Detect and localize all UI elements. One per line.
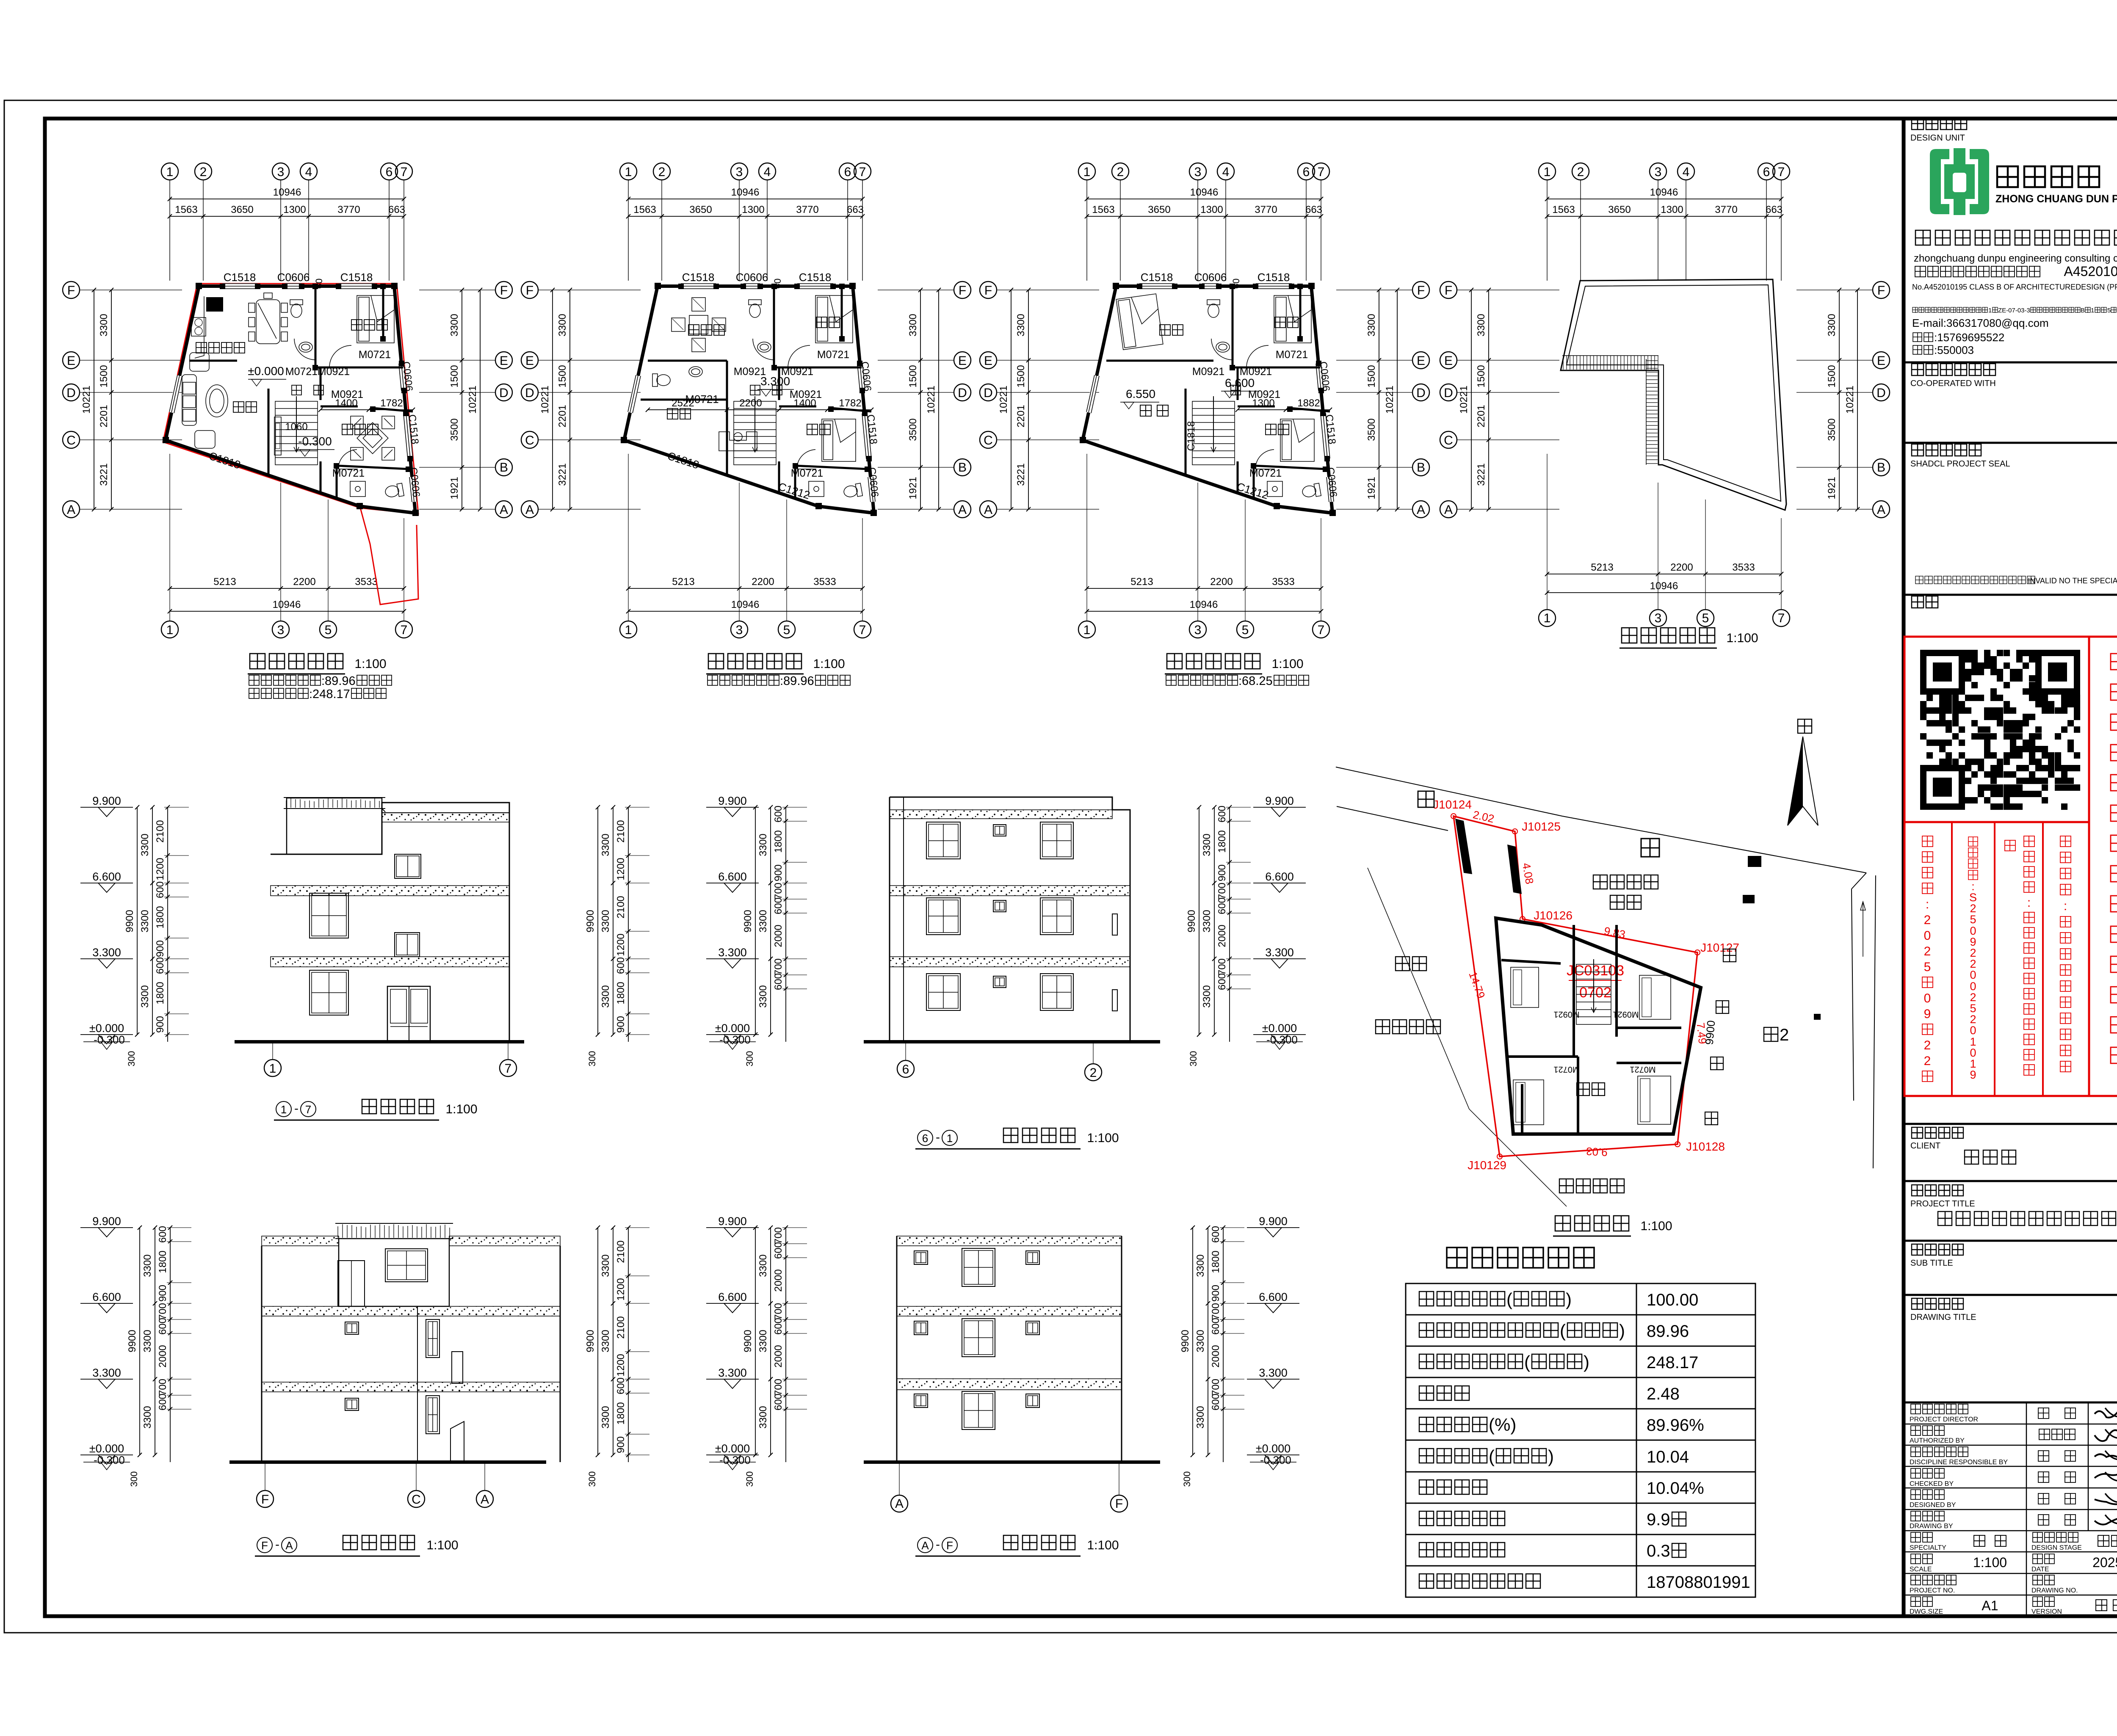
svg-text:0.3: 0.3	[1647, 1542, 1670, 1560]
svg-text:C0606: C0606	[1194, 271, 1227, 284]
svg-text:E: E	[984, 354, 992, 368]
svg-text:A: A	[285, 1539, 293, 1552]
svg-text:DESIGN UNIT: DESIGN UNIT	[1910, 133, 1965, 143]
svg-text:9900: 9900	[585, 1330, 596, 1352]
svg-text:2100: 2100	[615, 820, 627, 842]
svg-text:3300: 3300	[1201, 985, 1213, 1007]
svg-text:2000: 2000	[1210, 1345, 1222, 1367]
svg-text:A: A	[921, 1539, 929, 1552]
svg-text:5: 5	[1924, 960, 1931, 974]
svg-text:1: 1	[947, 1132, 953, 1145]
svg-text:300: 300	[744, 1471, 755, 1487]
svg-text:CHECKED BY: CHECKED BY	[1910, 1480, 1954, 1488]
svg-text:D: D	[984, 386, 993, 400]
svg-text:7: 7	[305, 1103, 311, 1116]
svg-text:1800: 1800	[773, 830, 784, 853]
svg-text:(: (	[1506, 1289, 1512, 1309]
svg-text:M0721: M0721	[685, 393, 719, 406]
svg-text:3770: 3770	[337, 204, 360, 215]
svg-text:1:100: 1:100	[445, 1102, 477, 1116]
svg-text:9.900: 9.900	[718, 795, 747, 807]
svg-text:A: A	[1417, 503, 1425, 517]
svg-text:J10128: J10128	[1686, 1140, 1725, 1153]
svg-text:9: 9	[1924, 1007, 1931, 1021]
svg-text:2: 2	[1924, 1054, 1931, 1068]
svg-text:DRAWING BY: DRAWING BY	[1910, 1523, 1953, 1530]
svg-text:±0.000: ±0.000	[1262, 1022, 1297, 1035]
svg-text:3300: 3300	[139, 910, 151, 932]
svg-text:600: 600	[155, 881, 166, 898]
svg-text:2000: 2000	[773, 1269, 784, 1292]
svg-text:3.300: 3.300	[92, 946, 121, 959]
svg-text:3650: 3650	[689, 204, 712, 215]
svg-text:C1818: C1818	[1186, 421, 1197, 451]
svg-text:4: 4	[1222, 165, 1230, 179]
svg-text:300: 300	[129, 1471, 139, 1487]
svg-text:2100: 2100	[615, 1240, 627, 1263]
svg-text:10221: 10221	[998, 386, 1009, 414]
svg-text:3300: 3300	[1201, 910, 1213, 932]
svg-text:600: 600	[773, 1242, 784, 1259]
svg-text:3300: 3300	[1195, 1330, 1206, 1352]
svg-text::89.96: :89.96	[321, 674, 356, 688]
svg-text:E: E	[958, 354, 967, 368]
svg-text:2: 2	[1577, 165, 1584, 179]
svg-text:9.900: 9.900	[718, 1215, 747, 1228]
svg-text:1882: 1882	[1297, 397, 1320, 409]
svg-text:6.600: 6.600	[718, 870, 747, 883]
svg-text:M0721: M0721	[1553, 1065, 1579, 1074]
svg-text:M0921: M0921	[331, 389, 363, 400]
svg-text:B: B	[958, 461, 967, 475]
svg-text:3221: 3221	[1476, 463, 1487, 486]
svg-text:9.03: 9.03	[1586, 1145, 1608, 1159]
svg-text:2: 2	[1924, 913, 1931, 927]
svg-text:6.600: 6.600	[1265, 870, 1294, 883]
svg-text:1563: 1563	[175, 204, 197, 215]
svg-text:-: -	[936, 1537, 940, 1551]
svg-text:C1518: C1518	[224, 271, 256, 284]
svg-text:1: 1	[1083, 623, 1091, 637]
svg-text:600: 600	[773, 1318, 784, 1335]
svg-text:1:100: 1:100	[1973, 1555, 2007, 1570]
svg-text:D: D	[1444, 386, 1453, 400]
svg-text:3500: 3500	[449, 418, 460, 441]
svg-text:900: 900	[615, 1016, 627, 1033]
svg-text:700: 700	[1216, 958, 1228, 975]
svg-text:9900: 9900	[127, 1330, 138, 1352]
svg-text:2: 2	[1924, 1038, 1931, 1052]
svg-text:F: F	[1417, 284, 1425, 298]
svg-text:M0721: M0721	[359, 349, 391, 361]
svg-text:700: 700	[773, 883, 784, 900]
svg-text:0: 0	[1924, 991, 1931, 1005]
svg-text:E: E	[1417, 354, 1425, 368]
svg-text:±0.000: ±0.000	[89, 1022, 124, 1035]
svg-text:M0921: M0921	[1613, 1010, 1639, 1019]
svg-text:3300: 3300	[1195, 1406, 1206, 1428]
svg-text:900: 900	[155, 1016, 166, 1033]
svg-text:600: 600	[615, 957, 627, 974]
svg-text:600: 600	[157, 1394, 169, 1410]
svg-text:300: 300	[1182, 1471, 1192, 1487]
svg-text:3300: 3300	[98, 314, 110, 336]
svg-text:DRAWING NO.: DRAWING NO.	[2031, 1587, 2078, 1594]
svg-text:10946: 10946	[1190, 187, 1219, 198]
svg-text:7: 7	[505, 1062, 512, 1076]
svg-text:3.300: 3.300	[1265, 946, 1294, 959]
svg-text:3650: 3650	[1148, 204, 1170, 215]
svg-text:-0.300: -0.300	[1260, 1454, 1291, 1466]
svg-text:M0921: M0921	[1553, 1010, 1579, 1019]
svg-text:D: D	[66, 386, 76, 400]
svg-text:7: 7	[1778, 165, 1785, 179]
svg-text:6: 6	[1303, 165, 1310, 179]
svg-text:10946: 10946	[731, 599, 760, 610]
svg-text:A452010195: A452010195	[2064, 264, 2117, 279]
svg-text:10946: 10946	[273, 187, 301, 198]
svg-text:700: 700	[773, 958, 784, 975]
svg-text:3770: 3770	[796, 204, 818, 215]
svg-text:-: -	[275, 1537, 279, 1551]
svg-text:SPECIALTY: SPECIALTY	[1910, 1544, 1946, 1551]
svg-text:A: A	[895, 1497, 904, 1511]
svg-text:2025.09: 2025.09	[2092, 1555, 2117, 1570]
svg-text:F: F	[984, 284, 992, 298]
svg-text::: :	[2027, 896, 2031, 910]
svg-text:1: 1	[269, 1062, 276, 1076]
svg-text:3300: 3300	[1826, 314, 1838, 336]
svg-text:600: 600	[1210, 1318, 1222, 1335]
svg-text:700: 700	[157, 1379, 169, 1396]
svg-text:F: F	[1877, 284, 1885, 298]
svg-text:1:100: 1:100	[426, 1538, 458, 1552]
svg-text:3: 3	[1655, 165, 1662, 179]
svg-text:1:100: 1:100	[1271, 657, 1303, 671]
svg-text:3770: 3770	[1255, 204, 1277, 215]
svg-text:1500: 1500	[1826, 365, 1838, 387]
svg-text:DESIGN STAGE: DESIGN STAGE	[2031, 1544, 2082, 1551]
svg-text:DATE: DATE	[2031, 1566, 2049, 1573]
svg-text:5213: 5213	[213, 576, 236, 588]
svg-text:3.300: 3.300	[92, 1366, 121, 1379]
svg-text:600: 600	[615, 1377, 627, 1394]
svg-text::: :	[2064, 899, 2067, 913]
svg-text:3500: 3500	[907, 418, 919, 441]
svg-text:10.04: 10.04	[1647, 1448, 1689, 1466]
svg-text:18708801991: 18708801991	[1647, 1573, 1750, 1592]
svg-text:1200: 1200	[615, 1354, 627, 1376]
svg-text:300: 300	[1188, 1051, 1199, 1067]
svg-text:2000: 2000	[773, 1345, 784, 1367]
svg-text::68.25: :68.25	[1238, 674, 1273, 688]
svg-text:3500: 3500	[1826, 418, 1838, 441]
svg-text:1500: 1500	[1476, 365, 1487, 387]
svg-text:F: F	[261, 1493, 269, 1507]
svg-text:3300: 3300	[757, 910, 769, 932]
svg-text:E-mail:366317080@qq.com: E-mail:366317080@qq.com	[1912, 317, 2049, 329]
svg-text:M0721: M0721	[285, 366, 318, 378]
svg-text:9900: 9900	[585, 910, 596, 932]
svg-text:6.600: 6.600	[92, 870, 121, 883]
svg-text:10946: 10946	[1190, 599, 1218, 610]
svg-text:J10129: J10129	[1468, 1159, 1506, 1172]
svg-text:5: 5	[783, 623, 790, 637]
svg-text:): )	[1566, 1289, 1572, 1309]
svg-text:-0.300: -0.300	[719, 1033, 751, 1046]
svg-text:1: 1	[166, 623, 174, 637]
svg-text:F: F	[959, 284, 966, 298]
svg-text:2201: 2201	[98, 405, 110, 427]
svg-text:3300: 3300	[600, 834, 611, 856]
svg-text:3: 3	[277, 165, 285, 179]
svg-text:A1: A1	[1982, 1598, 1998, 1613]
svg-text:1: 1	[281, 1103, 287, 1116]
svg-text:5: 5	[1242, 623, 1249, 637]
svg-text:(: (	[1524, 1352, 1530, 1372]
svg-text:A: A	[525, 503, 534, 517]
svg-text:): )	[1584, 1352, 1589, 1372]
svg-text:C1518: C1518	[682, 271, 715, 284]
svg-text:(: (	[1489, 1446, 1495, 1466]
svg-text:A: A	[984, 503, 992, 517]
svg-text:10946: 10946	[731, 187, 760, 198]
svg-text:1782: 1782	[380, 397, 403, 409]
svg-text:1500: 1500	[449, 365, 460, 387]
svg-text:1300: 1300	[1661, 204, 1683, 215]
svg-text:-0.300: -0.300	[1266, 1033, 1298, 1046]
svg-text:9900: 9900	[1180, 1330, 1191, 1352]
svg-text:F: F	[67, 284, 75, 298]
svg-text:663: 663	[1305, 204, 1322, 215]
svg-text:D: D	[499, 386, 509, 400]
svg-text:1563: 1563	[1092, 204, 1114, 215]
svg-text:1:100: 1:100	[813, 657, 845, 671]
svg-text:2100: 2100	[155, 820, 166, 842]
svg-text:1200: 1200	[615, 858, 627, 880]
svg-text:1: 1	[2091, 307, 2094, 314]
svg-text:3300: 3300	[1015, 314, 1027, 336]
svg-text:9900: 9900	[742, 1330, 754, 1352]
svg-text:1500: 1500	[98, 365, 110, 387]
svg-text:7: 7	[859, 165, 866, 179]
svg-text:1782: 1782	[839, 397, 861, 409]
svg-text:C0606: C0606	[736, 271, 768, 284]
svg-text:A: A	[958, 503, 967, 517]
svg-text:1: 1	[625, 623, 632, 637]
svg-text:M0921: M0921	[318, 366, 350, 378]
svg-text:600: 600	[773, 1394, 784, 1410]
svg-text:900: 900	[157, 1285, 169, 1302]
svg-text:PROJECT NO.: PROJECT NO.	[1910, 1587, 1955, 1594]
svg-text:9.9: 9.9	[1647, 1510, 1670, 1529]
svg-text:1500: 1500	[907, 365, 919, 387]
svg-text:(%): (%)	[1489, 1415, 1516, 1435]
svg-text:300: 300	[126, 1051, 137, 1067]
svg-text:1: 1	[1988, 307, 1992, 314]
svg-text:5213: 5213	[1591, 562, 1613, 573]
svg-text:1800: 1800	[155, 982, 166, 1004]
svg-text:600: 600	[1216, 806, 1228, 822]
svg-text:1563: 1563	[1552, 204, 1575, 215]
svg-text:J10124: J10124	[1433, 798, 1472, 811]
svg-text:600: 600	[155, 957, 166, 974]
svg-text:3533: 3533	[1272, 576, 1294, 588]
svg-text:(: (	[1560, 1321, 1566, 1341]
svg-text:3300: 3300	[1201, 834, 1213, 856]
svg-text:3300: 3300	[449, 314, 460, 336]
svg-text:M0721: M0721	[817, 349, 849, 361]
svg-text:2200: 2200	[293, 576, 315, 588]
svg-text:6: 6	[844, 165, 851, 179]
svg-text:E: E	[525, 354, 534, 368]
svg-text:9.900: 9.900	[1259, 1215, 1288, 1228]
svg-text:600: 600	[1210, 1394, 1222, 1410]
svg-text:2: 2	[1090, 1066, 1097, 1080]
svg-text:3770: 3770	[1715, 204, 1737, 215]
svg-text:1800: 1800	[157, 1250, 169, 1273]
svg-text:SUB TITLE: SUB TITLE	[1910, 1259, 1953, 1268]
svg-text:1921: 1921	[449, 477, 460, 499]
svg-text:B: B	[1877, 461, 1885, 475]
svg-text:3300: 3300	[1366, 314, 1377, 336]
svg-text:3300: 3300	[757, 1406, 769, 1428]
svg-text:1200: 1200	[155, 858, 166, 880]
svg-text:1:100: 1:100	[1087, 1131, 1119, 1145]
svg-text:-: -	[294, 1101, 298, 1115]
svg-text:3300: 3300	[142, 1254, 153, 1277]
svg-text:6: 6	[1763, 165, 1770, 179]
svg-text:E: E	[67, 354, 75, 368]
svg-text:CO-OPERATED WITH: CO-OPERATED WITH	[1910, 379, 1996, 388]
svg-text:M0721: M0721	[1630, 1065, 1655, 1074]
svg-text:300: 300	[744, 1051, 755, 1067]
svg-text:2201: 2201	[1476, 405, 1487, 427]
svg-text:3650: 3650	[231, 204, 253, 215]
svg-text:600: 600	[773, 973, 784, 990]
svg-text:10221: 10221	[1458, 386, 1470, 414]
svg-text:7: 7	[859, 623, 866, 637]
svg-text:3.300: 3.300	[1259, 1366, 1288, 1379]
svg-text:M0921: M0921	[1248, 389, 1280, 400]
svg-text:PROJECT TITLE: PROJECT TITLE	[1910, 1199, 1975, 1209]
svg-text::: :	[1926, 897, 1929, 911]
svg-text:4: 4	[305, 165, 312, 179]
svg-text:7: 7	[1318, 165, 1325, 179]
svg-text:663: 663	[1766, 204, 1783, 215]
svg-text:9900: 9900	[1186, 910, 1197, 932]
svg-text:600: 600	[157, 1226, 169, 1243]
svg-text:663: 663	[847, 204, 864, 215]
svg-text:3300: 3300	[600, 1254, 611, 1277]
svg-text:F: F	[261, 1539, 268, 1552]
svg-text:9900: 9900	[742, 910, 754, 932]
svg-text:±0.000: ±0.000	[715, 1022, 750, 1035]
svg-text:C1518: C1518	[799, 271, 832, 284]
svg-text:600: 600	[1216, 973, 1228, 990]
svg-text:10221: 10221	[467, 386, 478, 414]
svg-text:3300: 3300	[907, 314, 919, 336]
svg-text:B: B	[1417, 461, 1425, 475]
svg-text:6: 6	[386, 165, 393, 179]
svg-text:DESIGNED BY: DESIGNED BY	[1910, 1501, 1956, 1509]
svg-text:6: 6	[922, 1132, 928, 1145]
svg-text:A: A	[67, 503, 75, 517]
svg-text:3300: 3300	[757, 1330, 769, 1352]
svg-text:10946: 10946	[1650, 580, 1678, 592]
svg-text:±0.000: ±0.000	[715, 1442, 750, 1455]
svg-text:C0606: C0606	[277, 271, 310, 284]
svg-text:700: 700	[773, 1303, 784, 1320]
svg-text:1200: 1200	[615, 1278, 627, 1300]
svg-text:7: 7	[401, 165, 408, 179]
svg-text:9.900: 9.900	[92, 1215, 121, 1228]
svg-text:0: 0	[1924, 929, 1931, 943]
svg-text:2: 2	[1780, 1026, 1789, 1044]
svg-text:A: A	[1444, 503, 1453, 517]
svg-text:3221: 3221	[557, 463, 568, 486]
svg-text:1200: 1200	[615, 933, 627, 956]
svg-text:1500: 1500	[1366, 365, 1377, 387]
svg-text:3: 3	[1194, 623, 1202, 637]
svg-text:2: 2	[200, 165, 207, 179]
svg-text:700: 700	[157, 1303, 169, 1320]
svg-text:M0721: M0721	[1276, 349, 1308, 361]
svg-text:1:100: 1:100	[1087, 1538, 1119, 1552]
svg-text::15769695522: :15769695522	[1934, 331, 2004, 344]
svg-text:2000: 2000	[1216, 925, 1228, 947]
svg-text:6.550: 6.550	[1126, 387, 1155, 400]
svg-text:3221: 3221	[98, 463, 110, 486]
svg-text:1: 1	[166, 165, 174, 179]
svg-text:700: 700	[1210, 1303, 1222, 1320]
svg-text:3300: 3300	[139, 834, 151, 856]
svg-text:1921: 1921	[1366, 477, 1377, 499]
svg-text:SCALE: SCALE	[1910, 1566, 1932, 1573]
svg-text:2201: 2201	[557, 405, 568, 427]
svg-text:700: 700	[773, 1379, 784, 1396]
svg-text:C: C	[1444, 433, 1453, 447]
svg-text:D: D	[1877, 386, 1886, 400]
svg-text:F: F	[500, 284, 508, 298]
svg-text:900: 900	[615, 1436, 627, 1453]
svg-text:3533: 3533	[1732, 562, 1755, 573]
svg-text:): )	[1548, 1446, 1554, 1466]
svg-text:M0921: M0921	[734, 366, 766, 378]
svg-text:3.300: 3.300	[718, 1366, 747, 1379]
svg-text:±0.000: ±0.000	[89, 1442, 124, 1455]
svg-text:C1518: C1518	[340, 271, 373, 284]
svg-text:1500: 1500	[557, 365, 568, 387]
svg-text:9900: 9900	[1703, 1020, 1718, 1045]
svg-text:248.17: 248.17	[1647, 1353, 1698, 1372]
svg-text:1060: 1060	[285, 421, 307, 433]
svg-text:C1518: C1518	[1257, 271, 1290, 284]
svg-text:2: 2	[1117, 165, 1124, 179]
svg-text:600: 600	[1216, 897, 1228, 914]
svg-text:3300: 3300	[557, 314, 568, 336]
svg-text:M0921: M0921	[1240, 366, 1272, 378]
svg-text:M0721: M0721	[332, 467, 365, 479]
svg-text:D: D	[525, 386, 534, 400]
svg-text:2200: 2200	[1210, 576, 1233, 588]
svg-text:zhongchuang dunpu engineering: zhongchuang dunpu engineering consulting…	[1914, 253, 2117, 264]
svg-text:2: 2	[658, 165, 666, 179]
svg-text:-0.300: -0.300	[719, 1454, 751, 1466]
svg-text:3: 3	[736, 165, 743, 179]
svg-text:3300: 3300	[139, 985, 151, 1007]
svg-text:J10127: J10127	[1700, 941, 1739, 954]
